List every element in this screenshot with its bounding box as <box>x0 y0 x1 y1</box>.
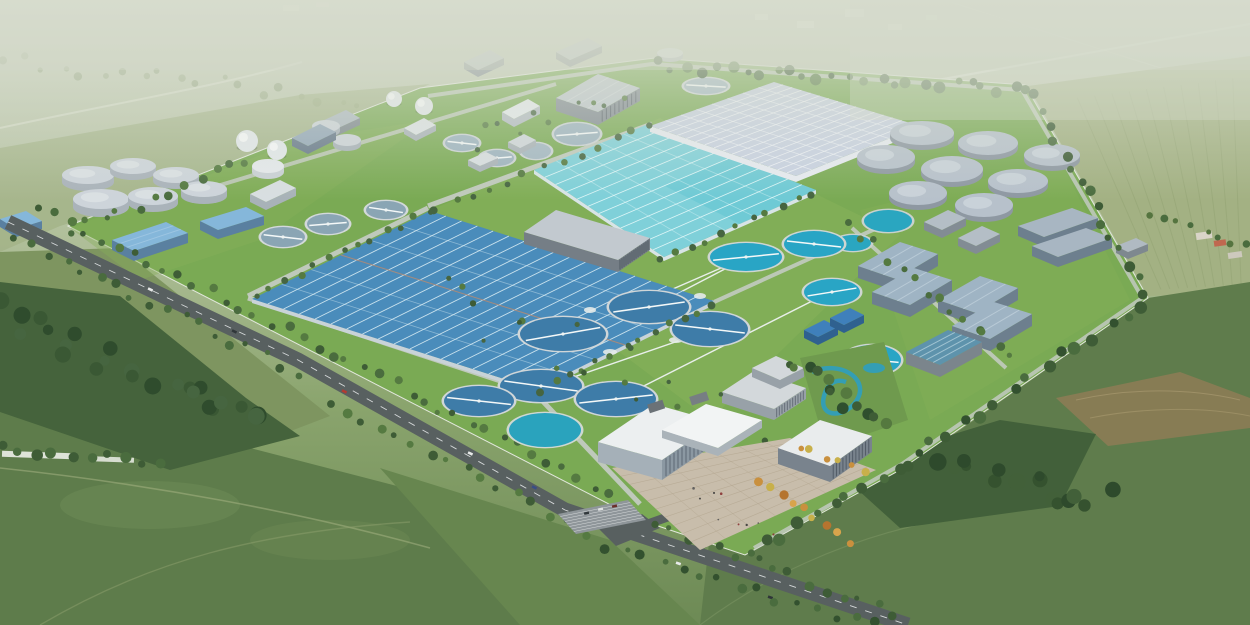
road-trees <box>471 422 477 428</box>
road-trees <box>145 302 153 310</box>
boundary-trees <box>814 510 821 517</box>
road-trees <box>635 550 645 560</box>
people <box>746 524 748 526</box>
road-trees <box>275 364 284 373</box>
road-trees <box>769 565 776 572</box>
boundary-trees <box>773 534 785 546</box>
forest-trees <box>34 311 48 325</box>
boundary-trees <box>1105 234 1111 240</box>
forest-trees <box>992 463 1006 477</box>
lawn-trees <box>622 380 628 386</box>
hedge-trees <box>156 458 166 468</box>
basin-edge-trees <box>281 277 288 284</box>
road-trees <box>66 258 72 264</box>
forest-trees <box>957 454 971 468</box>
boundary-trees <box>1020 373 1029 382</box>
garden-trees <box>841 387 853 399</box>
road-trees <box>696 573 703 580</box>
hedge-trees <box>31 449 43 461</box>
autumn-trees <box>808 515 815 522</box>
road-trees <box>443 457 448 462</box>
basin-edge-trees <box>635 338 640 343</box>
people <box>692 487 695 490</box>
secondary-clarifier <box>708 327 711 330</box>
road-trees <box>142 261 150 269</box>
road-trees <box>225 341 234 350</box>
garden-trees <box>869 412 878 421</box>
forest-trees <box>55 346 71 362</box>
basin-edge-trees <box>666 319 673 326</box>
lawn-trees <box>517 320 522 325</box>
forest-trees <box>43 325 53 335</box>
basin-edge-trees <box>366 238 372 244</box>
road-trees <box>546 513 555 522</box>
road-trees <box>625 547 630 552</box>
forest-trees <box>1035 471 1045 481</box>
boundary-trees <box>915 449 923 457</box>
boundary-trees <box>839 492 848 501</box>
road-trees <box>814 605 821 612</box>
basin-edge-trees <box>702 240 708 246</box>
hedge-trees <box>1227 240 1234 247</box>
road-trees <box>213 334 218 339</box>
road-trees <box>593 486 599 492</box>
forest-trees <box>144 377 161 394</box>
forest-trees <box>248 408 265 425</box>
boundary-trees <box>1011 384 1021 394</box>
basin-edge-trees <box>355 242 361 248</box>
lawn-trees <box>482 339 486 343</box>
forest-trees <box>14 307 31 324</box>
hedge-trees <box>1206 230 1211 235</box>
landscape-pond <box>509 413 581 447</box>
boundary-trees <box>1110 318 1119 327</box>
road-trees <box>571 474 580 483</box>
garden-trees <box>823 374 834 385</box>
boundary-trees <box>748 549 755 556</box>
autumn-trees <box>754 477 763 486</box>
road-trees <box>164 305 172 313</box>
basin-edge-trees <box>385 226 392 233</box>
basin-edge-trees <box>751 215 757 221</box>
garden-pond <box>863 363 885 373</box>
road-trees <box>526 496 535 505</box>
road-trees <box>604 489 613 498</box>
road-trees <box>340 356 346 362</box>
road-trees <box>80 231 86 237</box>
hedge-trees <box>1187 222 1193 228</box>
basin-edge-trees <box>430 206 438 214</box>
boundary-trees <box>1086 334 1098 346</box>
basin-edge-trees <box>554 377 562 385</box>
road-trees <box>853 613 861 621</box>
road-trees <box>300 333 308 341</box>
basin-edge-trees <box>309 262 315 268</box>
boundary-trees <box>924 437 933 446</box>
lawn-trees <box>575 322 580 327</box>
road-trees <box>395 376 403 384</box>
road-trees <box>666 525 671 530</box>
road-trees <box>449 410 455 416</box>
road-trees <box>286 322 295 331</box>
lawn-trees <box>1007 353 1012 358</box>
forest-trees <box>103 341 118 356</box>
road-trees <box>479 424 488 433</box>
road-trees <box>411 393 418 400</box>
primary-clarifier <box>384 208 387 211</box>
road-trees <box>378 425 387 434</box>
autumn-trees <box>798 446 804 452</box>
road-trees <box>234 306 242 314</box>
road-trees <box>558 463 565 470</box>
treated-water-tank <box>864 210 912 232</box>
secondary-clarifier <box>614 397 617 400</box>
road-trees <box>783 567 792 576</box>
road-trees <box>833 615 840 622</box>
road-trees <box>582 532 590 540</box>
forest-trees <box>1066 489 1081 504</box>
basin-edge-trees <box>657 256 664 263</box>
forest-trees <box>1078 499 1090 511</box>
lawn-trees <box>446 276 451 281</box>
boundary-trees <box>1138 290 1148 300</box>
lawn-trees <box>634 397 638 401</box>
road-trees <box>600 544 610 554</box>
road-trees <box>713 574 720 581</box>
road-trees <box>296 373 303 380</box>
road-trees <box>35 204 42 211</box>
autumn-trees <box>847 540 854 547</box>
people <box>699 498 701 500</box>
road-trees <box>681 566 689 574</box>
forest-trees <box>187 385 200 398</box>
road-trees <box>187 282 195 290</box>
road-trees <box>476 473 485 482</box>
road-trees <box>794 600 800 606</box>
basin-edge-trees <box>536 388 544 396</box>
road-trees <box>375 369 385 379</box>
lawn-trees <box>870 236 877 243</box>
lawn-trees <box>883 258 891 266</box>
secondary-clarifier-bright <box>744 255 747 258</box>
basin-edge-trees <box>265 286 271 292</box>
road-trees <box>242 341 247 346</box>
road-trees <box>515 489 523 497</box>
lawn-trees <box>978 328 986 336</box>
road-trees <box>716 542 724 550</box>
basin-edge-trees <box>717 230 725 238</box>
autumn-trees <box>790 500 797 507</box>
road-trees <box>527 450 536 459</box>
forest-trees <box>172 379 184 391</box>
basin-edge-trees <box>653 329 659 335</box>
boundary-trees <box>1136 273 1143 280</box>
garden-trees <box>826 388 833 395</box>
road-trees <box>756 555 762 561</box>
autumn-trees <box>800 503 808 511</box>
garden-trees <box>790 363 798 371</box>
forest-trees <box>214 396 228 410</box>
road-trees <box>269 323 276 330</box>
road-trees <box>316 345 325 354</box>
people <box>772 533 774 535</box>
road-trees <box>115 244 124 253</box>
road-trees <box>841 595 849 603</box>
road-trees <box>132 249 139 256</box>
hedge-trees <box>1243 240 1250 248</box>
lawn-trees <box>459 284 465 290</box>
lawn-trees <box>674 404 680 410</box>
road-trees <box>248 312 255 319</box>
lawn-trees <box>628 345 634 351</box>
boundary-trees <box>1068 342 1081 355</box>
secondary-clarifier-bright <box>830 290 833 293</box>
autumn-trees <box>824 456 831 463</box>
road-trees <box>50 208 58 216</box>
road-trees <box>391 432 397 438</box>
garden-trees <box>852 401 862 411</box>
lawn-trees <box>857 235 864 242</box>
hedge-trees <box>45 448 56 459</box>
road-trees <box>357 418 364 425</box>
basin-edge-trees <box>689 244 696 251</box>
field-patch <box>250 520 410 560</box>
boundary-trees <box>987 400 997 410</box>
road-trees <box>876 600 884 608</box>
hedge-trees <box>13 448 21 456</box>
forest-trees <box>236 401 248 413</box>
people <box>717 519 719 521</box>
basin-edge-trees <box>694 311 700 317</box>
boundary-trees <box>895 463 906 474</box>
basin-edge-trees <box>409 213 416 220</box>
road-trees <box>195 318 202 325</box>
road-trees <box>209 284 217 292</box>
road-trees <box>466 464 473 471</box>
road-trees <box>752 583 760 591</box>
primary-clarifier <box>281 235 284 238</box>
basin-edge-trees <box>342 247 348 253</box>
atmosphere <box>0 0 1250 200</box>
lawn-trees <box>996 342 1005 351</box>
basin-edge-trees <box>398 225 404 231</box>
lawn-trees <box>926 292 933 299</box>
boundary-trees <box>1135 301 1148 314</box>
road-trees <box>502 434 508 440</box>
basin-edge-trees <box>682 315 690 323</box>
basin-edge-trees <box>606 353 613 360</box>
forest-trees <box>1105 482 1121 498</box>
lawn-trees <box>581 370 587 376</box>
boundary-trees <box>961 415 970 424</box>
scene-svg <box>0 0 1250 625</box>
basin-edge-trees <box>326 254 333 261</box>
secondary-clarifier <box>647 305 650 308</box>
pump-well <box>584 307 596 313</box>
road-trees <box>343 409 353 419</box>
road-trees <box>223 300 229 306</box>
road-trees <box>854 596 859 601</box>
garden-trees <box>881 418 892 429</box>
road-trees <box>407 441 414 448</box>
road-trees <box>329 352 339 362</box>
boundary-trees <box>832 498 842 508</box>
hedge-trees <box>1146 212 1153 219</box>
forest-trees <box>68 327 82 341</box>
hedge-trees <box>1173 218 1178 223</box>
road-trees <box>77 270 82 275</box>
basin-edge-trees <box>708 302 716 310</box>
road-trees <box>651 521 658 528</box>
road-trees <box>805 582 815 592</box>
road-trees <box>420 398 427 405</box>
lawn-trees <box>946 309 951 314</box>
people <box>738 523 740 525</box>
lawn-trees <box>959 316 966 323</box>
lawn-trees <box>935 293 944 302</box>
road-trees <box>770 598 778 606</box>
lawn-trees <box>911 274 918 281</box>
lawn-trees <box>68 230 74 236</box>
road-trees <box>327 400 335 408</box>
autumn-trees <box>849 462 855 468</box>
boundary-trees <box>940 432 951 443</box>
secondary-clarifier <box>539 384 542 387</box>
lawn-trees <box>137 206 145 214</box>
basin-edge-trees <box>672 248 679 255</box>
lawn-trees <box>667 380 671 384</box>
autumn-trees <box>862 468 870 476</box>
boundary-trees <box>791 516 804 529</box>
road-trees <box>265 350 270 355</box>
road-trees <box>492 485 498 491</box>
road-trees <box>428 451 438 461</box>
lawn-trees <box>81 217 88 224</box>
road-trees <box>663 559 669 565</box>
forest-trees <box>90 362 104 376</box>
boundary-trees <box>1096 220 1105 229</box>
forest-trees <box>1008 473 1025 490</box>
road-trees <box>68 217 77 226</box>
road-trees <box>173 270 181 278</box>
garden-trees <box>813 366 823 376</box>
boundary-trees <box>762 534 773 545</box>
road-trees <box>184 312 190 318</box>
autumn-trees <box>835 457 841 463</box>
basin-edge-trees <box>592 358 597 363</box>
basin-edge-trees <box>732 223 737 228</box>
secondary-clarifier <box>477 399 480 402</box>
boundary-trees <box>1116 245 1122 251</box>
lawn-trees <box>845 219 852 226</box>
forest-trees <box>14 328 26 340</box>
boundary-trees <box>1056 346 1066 356</box>
lawn-trees <box>901 266 907 272</box>
basin-edge-trees <box>299 272 306 279</box>
autumn-trees <box>779 490 788 499</box>
road-trees <box>126 295 132 301</box>
hedge-trees <box>138 460 145 467</box>
boundary-trees <box>1124 261 1135 272</box>
lawn-trees <box>719 392 724 397</box>
lawn-trees <box>111 208 117 214</box>
forest-trees <box>126 370 139 383</box>
basin-edge-trees <box>780 203 788 211</box>
pump-well <box>694 293 706 299</box>
haze-top <box>0 0 1250 70</box>
lawn-trees <box>470 300 476 306</box>
hedge-trees <box>88 453 98 463</box>
boundary-trees <box>880 474 889 483</box>
boundary-trees <box>974 411 987 424</box>
lawn-trees <box>554 366 559 371</box>
road-trees <box>738 584 748 594</box>
primary-clarifier <box>326 222 329 225</box>
road-trees <box>98 273 107 282</box>
boundary-trees <box>856 483 867 494</box>
road-trees <box>46 253 53 260</box>
hedge-trees <box>103 450 111 458</box>
basin-edge-trees <box>254 294 259 299</box>
autumn-trees <box>805 445 813 453</box>
basin-edge-trees <box>761 210 768 217</box>
road-trees <box>435 410 440 415</box>
road-trees <box>111 279 120 288</box>
road-trees <box>823 588 832 597</box>
road-trees <box>159 268 165 274</box>
people <box>713 492 715 494</box>
forest-trees <box>929 453 947 471</box>
boundary-trees <box>1044 360 1056 372</box>
people <box>720 492 723 495</box>
road-trees <box>888 611 897 620</box>
autumn-trees <box>823 521 832 530</box>
secondary-clarifier-bright <box>812 242 815 245</box>
people <box>757 522 759 524</box>
hedge-trees <box>1160 215 1168 223</box>
boundary-trees <box>1095 202 1103 210</box>
road-trees <box>362 364 368 370</box>
hedge-trees <box>1215 234 1221 240</box>
basin-edge-trees <box>567 371 573 377</box>
road-trees <box>27 239 35 247</box>
boundary-trees <box>1125 313 1133 321</box>
hedge-trees <box>120 452 131 463</box>
road-trees <box>732 554 740 562</box>
autumn-trees <box>766 483 774 491</box>
garden-trees <box>837 402 849 414</box>
hedge-trees <box>69 452 79 462</box>
lawn-trees <box>105 215 110 220</box>
autumn-trees <box>833 528 841 536</box>
road-trees <box>98 239 105 246</box>
secondary-clarifier <box>561 332 564 335</box>
road-trees <box>541 459 550 468</box>
road-trees <box>10 235 17 242</box>
aerial-render-wastewater-plant <box>0 0 1250 625</box>
